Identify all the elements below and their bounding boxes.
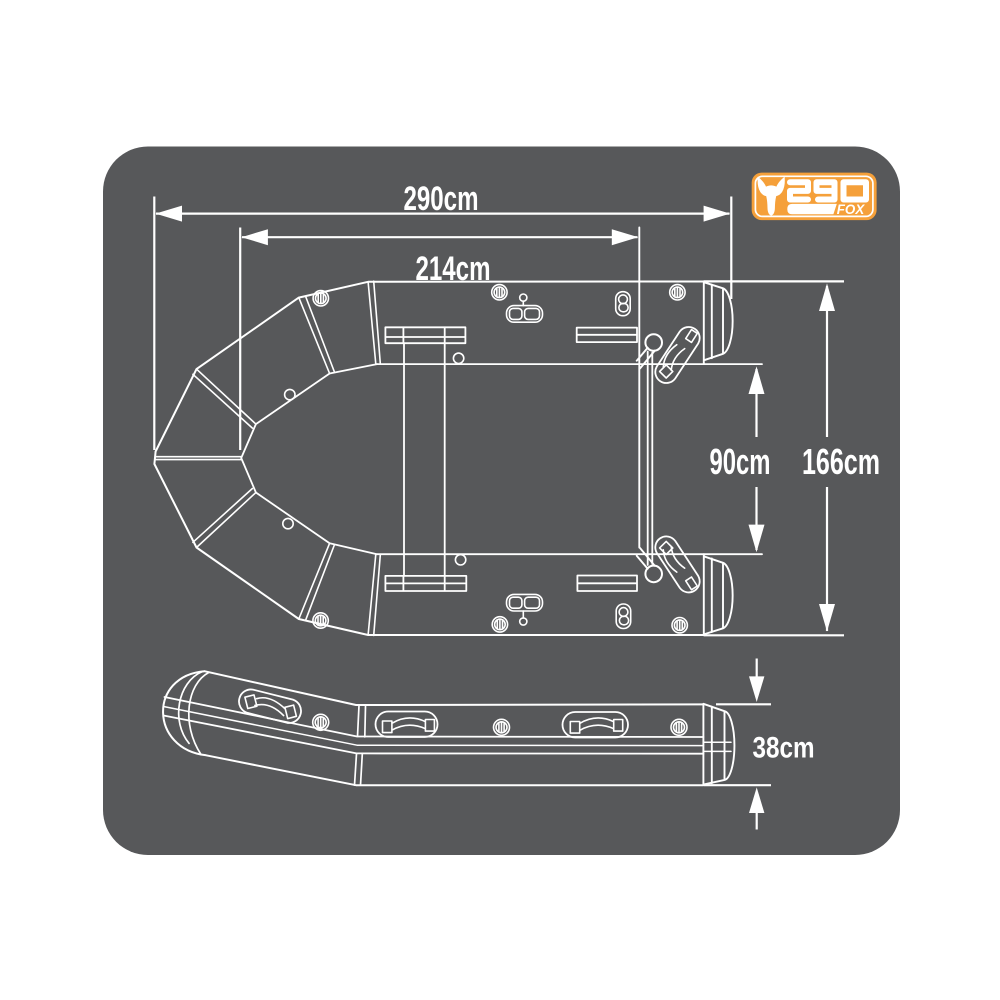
svg-text:38cm: 38cm (753, 732, 815, 765)
svg-text:290cm: 290cm (404, 180, 479, 218)
svg-text:166cm: 166cm (802, 441, 880, 482)
svg-text:FOX: FOX (837, 202, 865, 217)
svg-text:90cm: 90cm (710, 441, 771, 482)
